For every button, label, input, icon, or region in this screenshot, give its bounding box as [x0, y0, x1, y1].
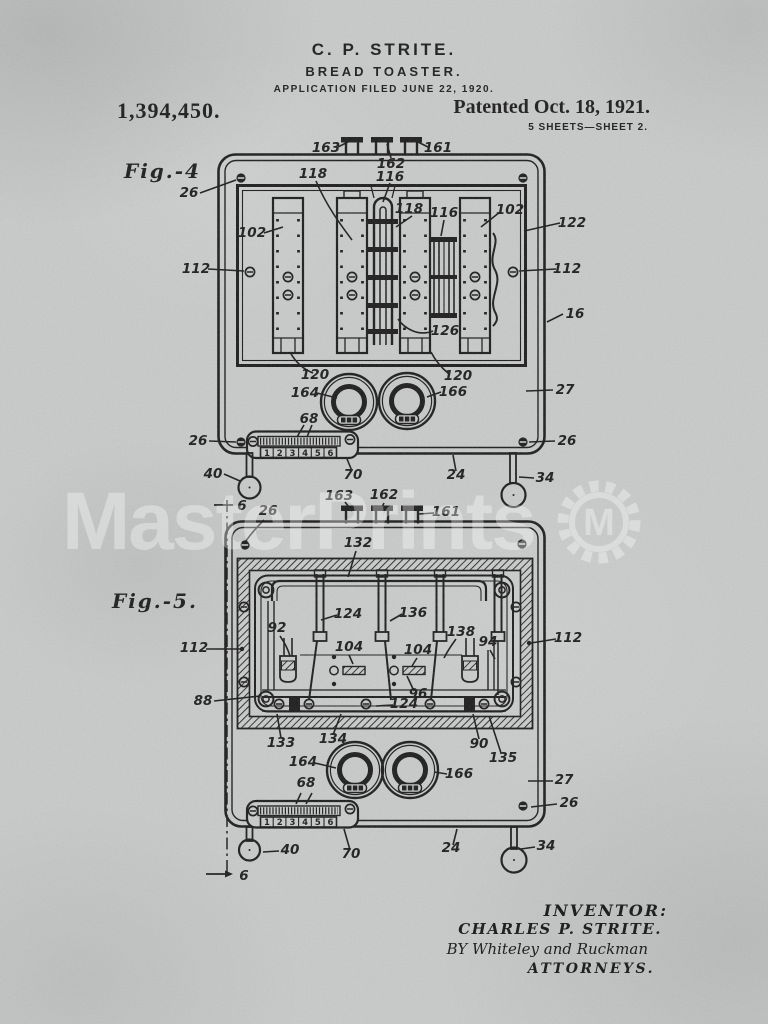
ref-number: 163 [312, 140, 340, 156]
patent-date: Patented Oct. 18, 1921. [453, 96, 650, 119]
ref-number: 26 [180, 185, 199, 201]
ref-number: 120 [301, 367, 329, 383]
patent-document-page: { "ink_color": "#1d1d1d", "paper_color":… [0, 0, 768, 1024]
sheet-info: 5 SHEETS—SHEET 2. [528, 122, 648, 133]
ref-number: 92 [268, 620, 287, 636]
ref-number: 16 [566, 306, 585, 322]
ref-number: 118 [299, 166, 327, 182]
scale-digit: 2 [277, 449, 283, 459]
scale-digit: 4 [302, 818, 308, 828]
ref-number: 116 [430, 205, 458, 221]
ref-number: 133 [267, 735, 295, 751]
ref-number: 24 [447, 467, 466, 483]
ref-number: 90 [470, 736, 489, 752]
scale-digit: 1 [264, 818, 270, 828]
signature-attorneys: ATTORNEYS. [528, 961, 655, 977]
ref-number: 166 [445, 766, 473, 782]
ref-number: 27 [555, 772, 574, 788]
latch-right [462, 638, 478, 682]
ref-number: 164 [289, 754, 317, 770]
heating-element-center [368, 186, 398, 345]
ref-number: 68 [300, 411, 319, 427]
heating-element-right [431, 237, 457, 318]
scale-digit: 2 [277, 818, 283, 828]
ref-number: 120 [444, 368, 472, 384]
scale-digit: 4 [302, 449, 308, 459]
ref-number: 134 [319, 731, 347, 747]
ref-number: 70 [342, 846, 361, 862]
ref-number: 26 [558, 433, 577, 449]
ref-number: 112 [554, 630, 582, 646]
figure5-label: Fig.-5. [111, 589, 198, 613]
ref-number: 68 [297, 775, 316, 791]
ref-number: 163 [325, 488, 353, 504]
ref-number: 24 [442, 840, 461, 856]
ref-number: 132 [344, 535, 372, 551]
patent-number: 1,394,450. [117, 98, 221, 124]
ref-number: 40 [203, 466, 223, 482]
ref-number: 136 [399, 605, 427, 621]
browning-dial-right [379, 373, 435, 429]
ref-number: 166 [439, 384, 467, 400]
ref-number: 124 [390, 696, 418, 712]
ref-number: 70 [344, 467, 363, 483]
ref-number: 102 [238, 225, 266, 241]
ref-number: 122 [558, 215, 586, 231]
browning-dial-right-f5 [382, 742, 438, 798]
ref-number: 104 [335, 639, 363, 655]
scale-digit: 6 [328, 449, 334, 459]
browning-dial-left-f5 [327, 742, 383, 798]
figure5-leader-lines [206, 502, 557, 852]
header-inventor-name: C. P. STRITE. [0, 40, 768, 60]
scale-digit: 3 [289, 449, 295, 459]
ref-number: 26 [560, 795, 579, 811]
ref-number: 104 [404, 642, 432, 658]
resistor-left [343, 667, 365, 675]
signature-by-line: BY Whiteley and Ruckman [447, 940, 648, 958]
figure5-drawing: 1631621616261321241369213894112112104104… [111, 487, 582, 884]
scale-digit: 6 [328, 818, 334, 828]
scale-digit: 3 [289, 818, 295, 828]
ref-number: 124 [334, 606, 362, 622]
ref-number: 112 [553, 261, 581, 277]
signature-inventor-heading: INVENTOR: [544, 901, 668, 920]
ref-number: 6 [239, 868, 248, 884]
ref-number: 161 [432, 504, 460, 520]
scale-digit: 5 [315, 818, 321, 828]
signature-inventor-name: CHARLES P. STRITE. [458, 920, 662, 938]
ref-number: 135 [489, 750, 517, 766]
ref-number: 112 [182, 261, 210, 277]
ref-number: 40 [280, 842, 300, 858]
scale-digit: 5 [315, 449, 321, 459]
ref-number: 26 [259, 503, 278, 519]
ref-number: 118 [395, 201, 423, 217]
ref-number: 27 [556, 382, 575, 398]
figure4-drawing: 1631621161181612610211811610212211211212… [123, 137, 586, 507]
figure4-label: Fig.-4 [123, 159, 201, 183]
ref-number: 94 [479, 634, 498, 650]
scale-digit: 1 [264, 449, 270, 459]
ref-number: 34 [536, 470, 555, 486]
ref-number: 161 [424, 140, 452, 156]
ref-number: 112 [180, 640, 208, 656]
browning-dial-left [321, 374, 377, 430]
ref-number: 6 [237, 498, 246, 514]
ref-number: 102 [496, 202, 524, 218]
resistor-right [403, 667, 425, 675]
ref-number: 162 [370, 487, 398, 503]
ref-number: 164 [291, 385, 319, 401]
ref-number: 126 [431, 323, 459, 339]
ref-number: 34 [537, 838, 556, 854]
latch-left [280, 638, 296, 682]
ref-number: 26 [189, 433, 208, 449]
ref-number: 138 [447, 624, 475, 640]
ref-number: 116 [376, 169, 404, 185]
ref-number: 88 [194, 693, 213, 709]
header-invention-title: BREAD TOASTER. [0, 64, 768, 79]
header-application-line: APPLICATION FILED JUNE 22, 1920. [0, 84, 768, 95]
patent-drawing: 1631621161181612610211811610212211211212… [0, 0, 768, 1024]
figure4-leader-lines [200, 140, 563, 481]
